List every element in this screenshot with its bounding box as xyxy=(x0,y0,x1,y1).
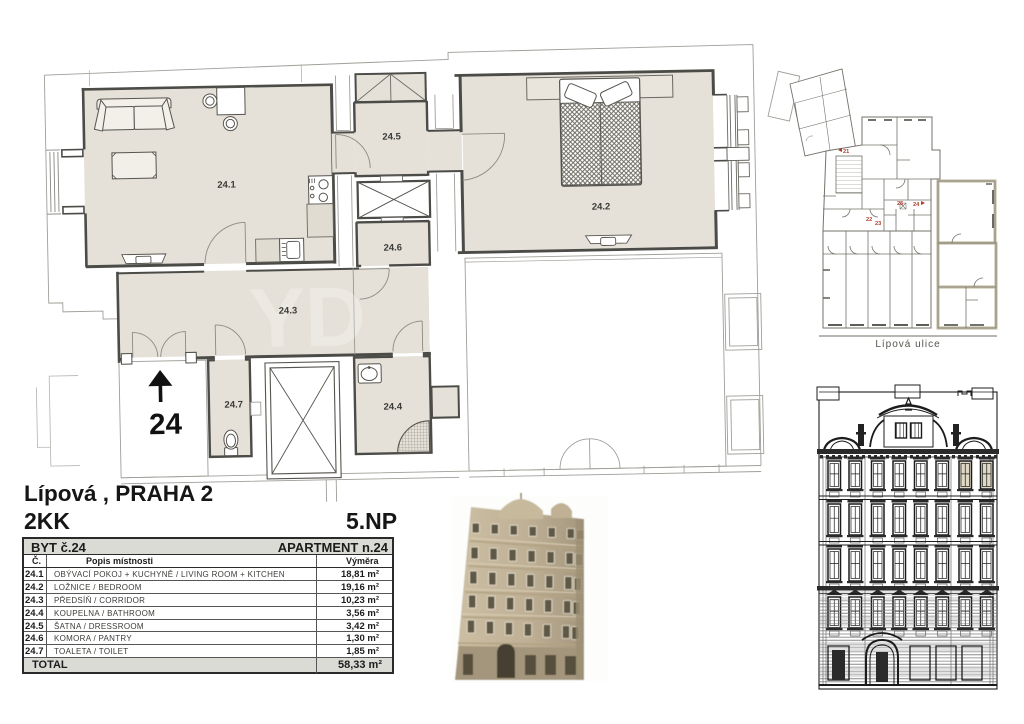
svg-text:YD: YD xyxy=(248,269,366,365)
svg-text:24.5: 24.5 xyxy=(382,131,401,142)
svg-text:24.6: 24.6 xyxy=(383,242,402,253)
svg-text:Lípová ulice: Lípová ulice xyxy=(875,339,940,350)
svg-text:21: 21 xyxy=(843,149,849,155)
svg-text:22: 22 xyxy=(866,217,872,223)
svg-text:24: 24 xyxy=(149,408,183,442)
svg-text:24.4: 24.4 xyxy=(383,401,402,412)
svg-text:24.3: 24.3 xyxy=(279,305,298,316)
svg-text:24.1: 24.1 xyxy=(217,180,236,191)
svg-text:24: 24 xyxy=(913,202,920,208)
svg-text:25: 25 xyxy=(897,201,903,207)
svg-text:24.7: 24.7 xyxy=(224,399,243,410)
svg-text:24.2: 24.2 xyxy=(592,201,611,212)
svg-text:23: 23 xyxy=(875,221,881,227)
